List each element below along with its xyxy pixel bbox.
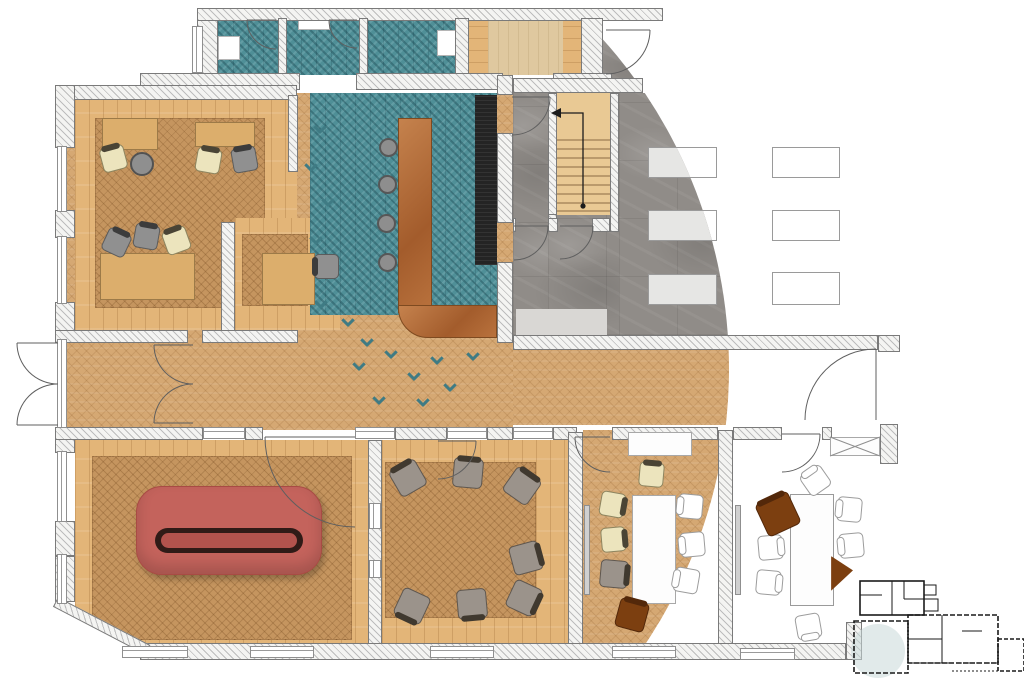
storage-shelf-right xyxy=(563,20,583,75)
dining-chair xyxy=(638,461,665,488)
dining-chair-line xyxy=(679,531,706,558)
door-arc-hall-end xyxy=(805,349,876,420)
transition-chevron xyxy=(443,383,455,393)
window xyxy=(122,646,188,658)
hall-table xyxy=(772,210,840,241)
key-plan-annex xyxy=(924,599,938,611)
wall xyxy=(497,75,513,95)
interior-window xyxy=(369,560,381,578)
transition-chevron xyxy=(416,398,428,408)
transition-chevron xyxy=(304,163,316,173)
office-desk xyxy=(195,122,255,147)
dining-chair-line xyxy=(672,566,701,595)
window xyxy=(250,646,314,658)
wall xyxy=(368,440,382,655)
wall xyxy=(581,18,603,78)
key-plan xyxy=(851,581,1024,678)
window xyxy=(612,646,676,658)
wall xyxy=(288,95,298,172)
wall xyxy=(202,330,298,343)
hall-table xyxy=(648,147,717,178)
hall-table xyxy=(648,274,717,305)
bar-stool xyxy=(377,214,396,233)
office-desk xyxy=(262,253,315,305)
wall xyxy=(880,424,898,464)
key-plan-building-2-rooms xyxy=(908,615,982,663)
interior-window xyxy=(447,427,487,439)
wall xyxy=(878,335,900,352)
wall xyxy=(278,18,287,75)
wall xyxy=(548,218,558,232)
hall-table xyxy=(772,147,840,178)
office-chair xyxy=(130,152,154,176)
office-desk xyxy=(100,253,195,300)
bar-stool xyxy=(378,175,397,194)
window xyxy=(740,648,795,660)
dining-table xyxy=(632,495,676,604)
key-plan-building-2-detail xyxy=(940,663,998,671)
back-bar-counter xyxy=(475,95,497,265)
seminar-chair xyxy=(456,588,489,621)
window xyxy=(57,554,67,604)
entrance-door-frame xyxy=(57,339,67,428)
transition-chevron xyxy=(384,350,396,360)
wall xyxy=(245,427,263,440)
transition-chevron xyxy=(466,352,478,362)
key-plan-building-2-east xyxy=(998,639,1024,671)
wall xyxy=(568,432,583,655)
dining-chair xyxy=(599,559,629,589)
office-chair xyxy=(314,254,339,279)
wall xyxy=(497,133,513,223)
transition-chevron xyxy=(309,236,321,246)
doormat xyxy=(516,309,607,335)
transition-chevron xyxy=(313,125,325,135)
meeting-chair-line xyxy=(798,463,833,498)
hall-table xyxy=(772,272,840,305)
key-plan-annex xyxy=(924,585,936,595)
bar-stool xyxy=(378,253,397,272)
storage-shelf-left xyxy=(468,20,488,75)
floor-plan-canvas xyxy=(0,0,1024,678)
window xyxy=(57,236,67,304)
wall xyxy=(55,85,297,100)
key-plan-building-1 xyxy=(860,581,924,615)
sofa-table xyxy=(161,533,297,548)
bar-counter xyxy=(398,118,432,313)
hall-table xyxy=(648,210,717,241)
wc-fixture xyxy=(437,30,457,56)
window xyxy=(57,146,67,212)
wall-office-partition xyxy=(221,222,235,332)
key-plan-building-2-main xyxy=(908,615,998,663)
meeting-chair-line xyxy=(757,534,784,561)
dining-chair xyxy=(600,526,627,553)
interior-window xyxy=(355,427,395,439)
window xyxy=(430,646,494,658)
wall xyxy=(55,210,75,238)
transition-chevron xyxy=(321,198,333,208)
transition-chevron xyxy=(360,338,372,348)
bar-counter-return xyxy=(398,305,497,338)
wall xyxy=(55,85,75,148)
radiator xyxy=(735,505,741,595)
wall xyxy=(487,427,513,440)
wall xyxy=(718,430,733,660)
wall xyxy=(55,427,203,440)
key-plan-building-2-west xyxy=(854,621,908,673)
transition-chevron xyxy=(352,362,364,372)
wall-stair-enclosure xyxy=(610,93,619,232)
office-chair xyxy=(194,146,223,175)
transition-chevron xyxy=(372,396,384,406)
transition-chevron xyxy=(341,318,353,328)
transition-chevron xyxy=(430,356,442,366)
sideboard xyxy=(628,432,692,456)
meeting-chair-line xyxy=(794,612,823,641)
meeting-chair-line xyxy=(755,569,782,596)
wc-fixture xyxy=(218,36,240,60)
wall xyxy=(513,335,878,350)
meeting-chair-line xyxy=(836,496,863,523)
wall xyxy=(395,427,447,440)
cabinet-crossed xyxy=(830,437,880,456)
wall xyxy=(359,18,368,75)
window xyxy=(57,451,67,522)
dining-chair-line xyxy=(677,493,704,520)
interior-window xyxy=(513,427,553,439)
bar-stool xyxy=(379,138,398,157)
transition-chevron xyxy=(407,372,419,382)
wall xyxy=(497,262,513,343)
meeting-chair-line xyxy=(838,532,865,559)
interior-window xyxy=(203,427,245,439)
wall xyxy=(513,218,516,232)
seminar-chair xyxy=(452,457,485,490)
floor-stair-corridor xyxy=(513,93,548,223)
wall xyxy=(356,73,503,90)
radiator xyxy=(584,505,590,595)
transition-chevron xyxy=(314,300,326,310)
key-plan-building-1-rooms xyxy=(860,581,924,615)
stair-flight xyxy=(556,93,610,215)
wall xyxy=(733,427,782,440)
interior-window xyxy=(369,503,381,529)
wall xyxy=(846,622,862,660)
wall xyxy=(592,218,610,232)
wall xyxy=(55,330,188,343)
wall xyxy=(513,78,643,93)
wall-stair-enclosure xyxy=(548,93,557,218)
office-chair xyxy=(132,222,161,251)
floor-corridor-wood-east xyxy=(513,343,735,425)
window xyxy=(192,26,203,73)
office-chair xyxy=(230,145,259,174)
dining-chair xyxy=(598,490,627,519)
wall xyxy=(55,521,75,556)
wall xyxy=(455,18,469,75)
